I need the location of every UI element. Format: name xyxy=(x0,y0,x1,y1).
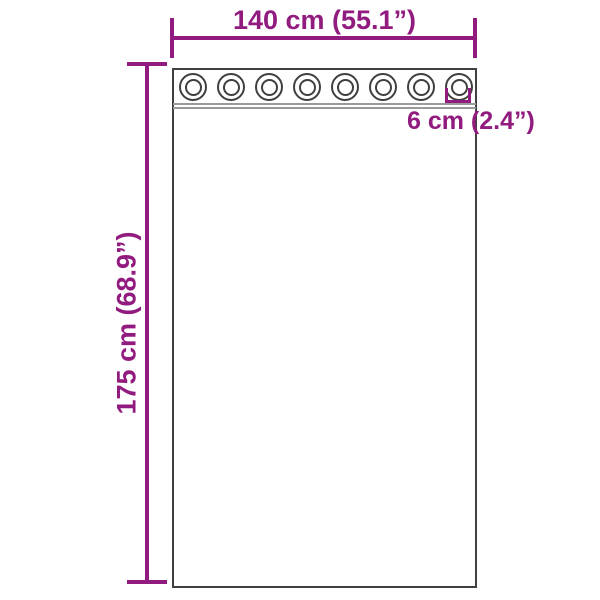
grommet-inner-ring xyxy=(413,79,430,96)
curtain-dimension-diagram: 140 cm (55.1”) 175 cm (68.9”) 6 cm (2.4”… xyxy=(0,0,600,600)
grommet xyxy=(369,73,397,101)
grommet xyxy=(331,73,359,101)
grommet-size-label: 6 cm (2.4”) xyxy=(407,107,535,136)
grommet xyxy=(217,73,245,101)
grommet-inner-ring xyxy=(185,79,202,96)
grommet-dimension-line xyxy=(445,100,471,103)
grommet-inner-ring xyxy=(261,79,278,96)
grommet-inner-ring xyxy=(299,79,316,96)
grommet xyxy=(293,73,321,101)
grommet-inner-ring xyxy=(375,79,392,96)
grommet-inner-ring xyxy=(337,79,354,96)
width-dimension-label: 140 cm (55.1”) xyxy=(172,5,477,36)
curtain-panel-outline xyxy=(172,68,477,588)
header-band-separator-top xyxy=(173,103,476,105)
height-dimension-tick-bottom xyxy=(127,580,167,584)
grommet xyxy=(407,73,435,101)
width-dimension-line xyxy=(172,36,477,40)
height-dimension-line xyxy=(145,64,149,582)
grommet xyxy=(179,73,207,101)
grommet-inner-ring xyxy=(223,79,240,96)
grommet-inner-ring xyxy=(451,79,468,96)
height-dimension-tick-top xyxy=(127,62,167,66)
grommet xyxy=(255,73,283,101)
height-dimension-label: 175 cm (68.9”) xyxy=(112,231,143,414)
